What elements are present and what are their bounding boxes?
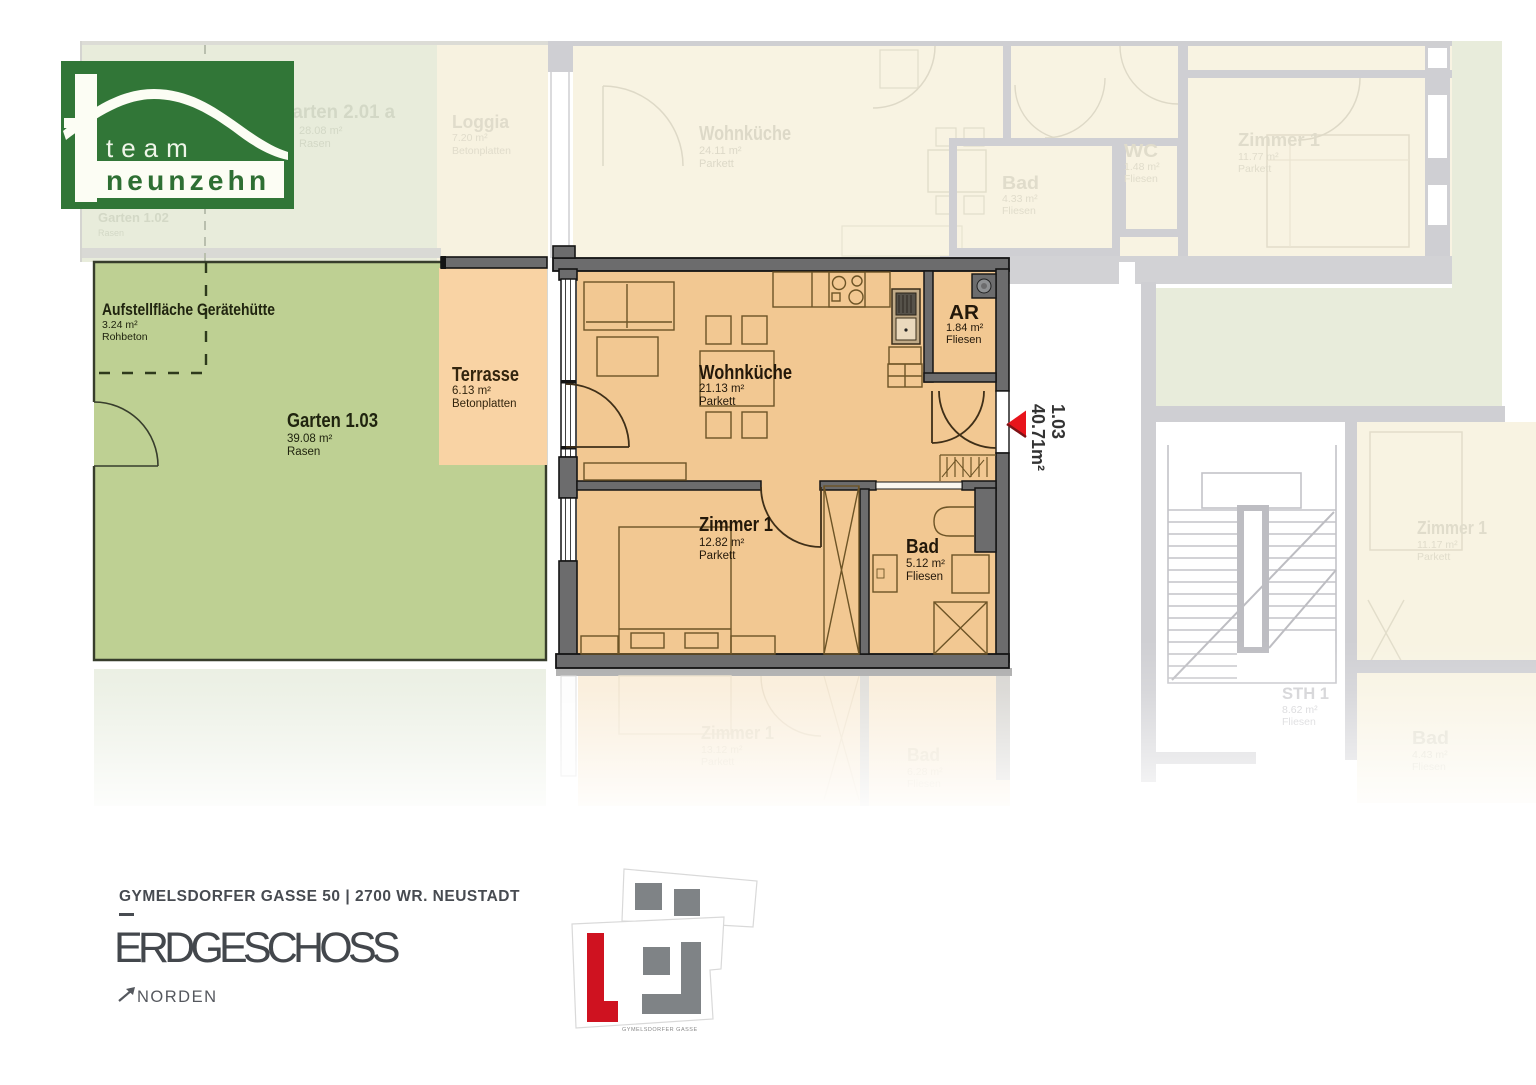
svg-text:Aufstellfläche Gerätehütte: Aufstellfläche Gerätehütte [102,301,275,319]
svg-text:NORDEN: NORDEN [137,988,218,1006]
svg-text:28.08 m²: 28.08 m² [299,125,343,137]
svg-text:40.71m²: 40.71m² [1028,404,1048,471]
svg-text:24.11 m²: 24.11 m² [699,145,742,157]
svg-text:Garten 1.03: Garten 1.03 [287,410,378,432]
svg-text:Zimmer 1: Zimmer 1 [699,514,773,536]
svg-text:Garten 1.02: Garten 1.02 [98,210,169,225]
svg-text:Fliesen: Fliesen [946,334,981,346]
svg-text:6.13 m²: 6.13 m² [452,385,491,397]
svg-text:neunzehn: neunzehn [106,165,270,196]
svg-text:Betonplatten: Betonplatten [452,145,511,157]
svg-text:Fliesen: Fliesen [1124,173,1158,185]
svg-text:1.84 m²: 1.84 m² [946,322,984,334]
svg-text:GYMELSDORFER GASSE: GYMELSDORFER GASSE [622,1027,698,1033]
svg-text:1.03: 1.03 [1048,404,1068,439]
svg-text:11.17 m²: 11.17 m² [1417,539,1458,551]
svg-text:7.20 m²: 7.20 m² [452,132,488,144]
svg-text:Rasen: Rasen [98,228,124,238]
svg-text:21.13 m²: 21.13 m² [699,383,745,395]
svg-text:Fliesen: Fliesen [906,571,943,583]
svg-text:WC: WC [1124,141,1158,161]
svg-text:AR: AR [949,302,980,324]
svg-text:Bad: Bad [1002,173,1039,193]
svg-text:Parkett: Parkett [1238,163,1271,175]
svg-text:Rasen: Rasen [299,138,331,150]
svg-text:Wohnküche: Wohnküche [699,362,792,384]
svg-text:Zimmer 1: Zimmer 1 [1417,518,1487,538]
svg-text:3.24 m²: 3.24 m² [102,319,138,331]
svg-text:12.82 m²: 12.82 m² [699,537,745,549]
svg-text:39.08 m²: 39.08 m² [287,433,333,445]
svg-text:Rasen: Rasen [287,446,320,458]
svg-text:Parkett: Parkett [699,550,736,562]
svg-text:team: team [106,133,196,163]
svg-text:Wohnküche: Wohnküche [699,123,791,145]
svg-text:ERDGESCHOSS: ERDGESCHOSS [114,924,399,972]
svg-text:5.12 m²: 5.12 m² [906,558,945,570]
svg-text:Rohbeton: Rohbeton [102,331,148,343]
svg-text:Loggia: Loggia [452,112,510,132]
svg-text:Terrasse: Terrasse [452,364,519,386]
svg-text:1.48 m²: 1.48 m² [1124,161,1160,173]
svg-text:Parkett: Parkett [1417,551,1450,563]
svg-text:Zimmer 1: Zimmer 1 [1238,130,1320,150]
svg-text:Garten 2.01 a: Garten 2.01 a [278,102,395,123]
svg-text:Bad: Bad [906,536,939,558]
svg-text:Fliesen: Fliesen [1002,205,1036,217]
svg-text:Parkett: Parkett [699,158,734,170]
svg-text:Betonplatten: Betonplatten [452,398,517,410]
svg-text:4.33 m²: 4.33 m² [1002,193,1038,205]
svg-text:GYMELSDORFER GASSE 50 | 2700 W: GYMELSDORFER GASSE 50 | 2700 WR. NEUSTAD… [119,888,520,905]
svg-text:Parkett: Parkett [699,396,736,408]
svg-text:11.77 m²: 11.77 m² [1238,151,1279,163]
